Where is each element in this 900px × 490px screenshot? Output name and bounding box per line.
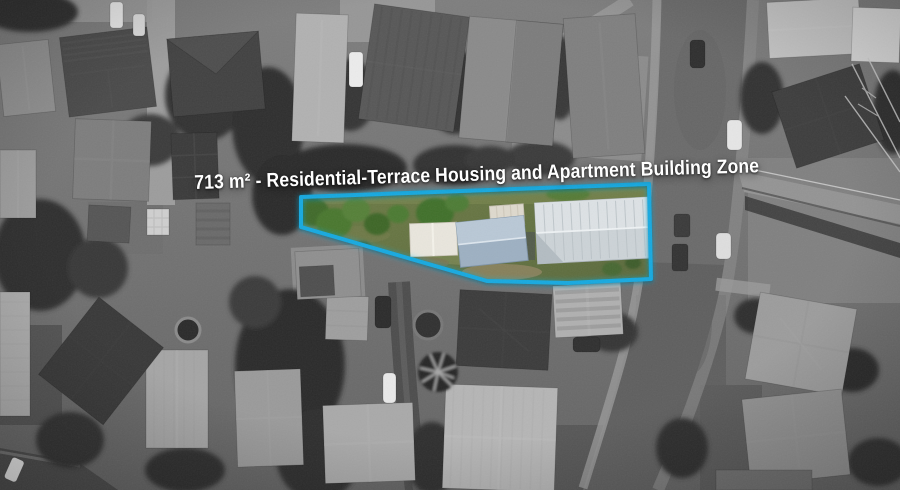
film-grain xyxy=(0,0,900,490)
aerial-scene xyxy=(0,0,900,490)
aerial-photo: 713 m² - Residential-Terrace Housing and… xyxy=(0,0,900,490)
